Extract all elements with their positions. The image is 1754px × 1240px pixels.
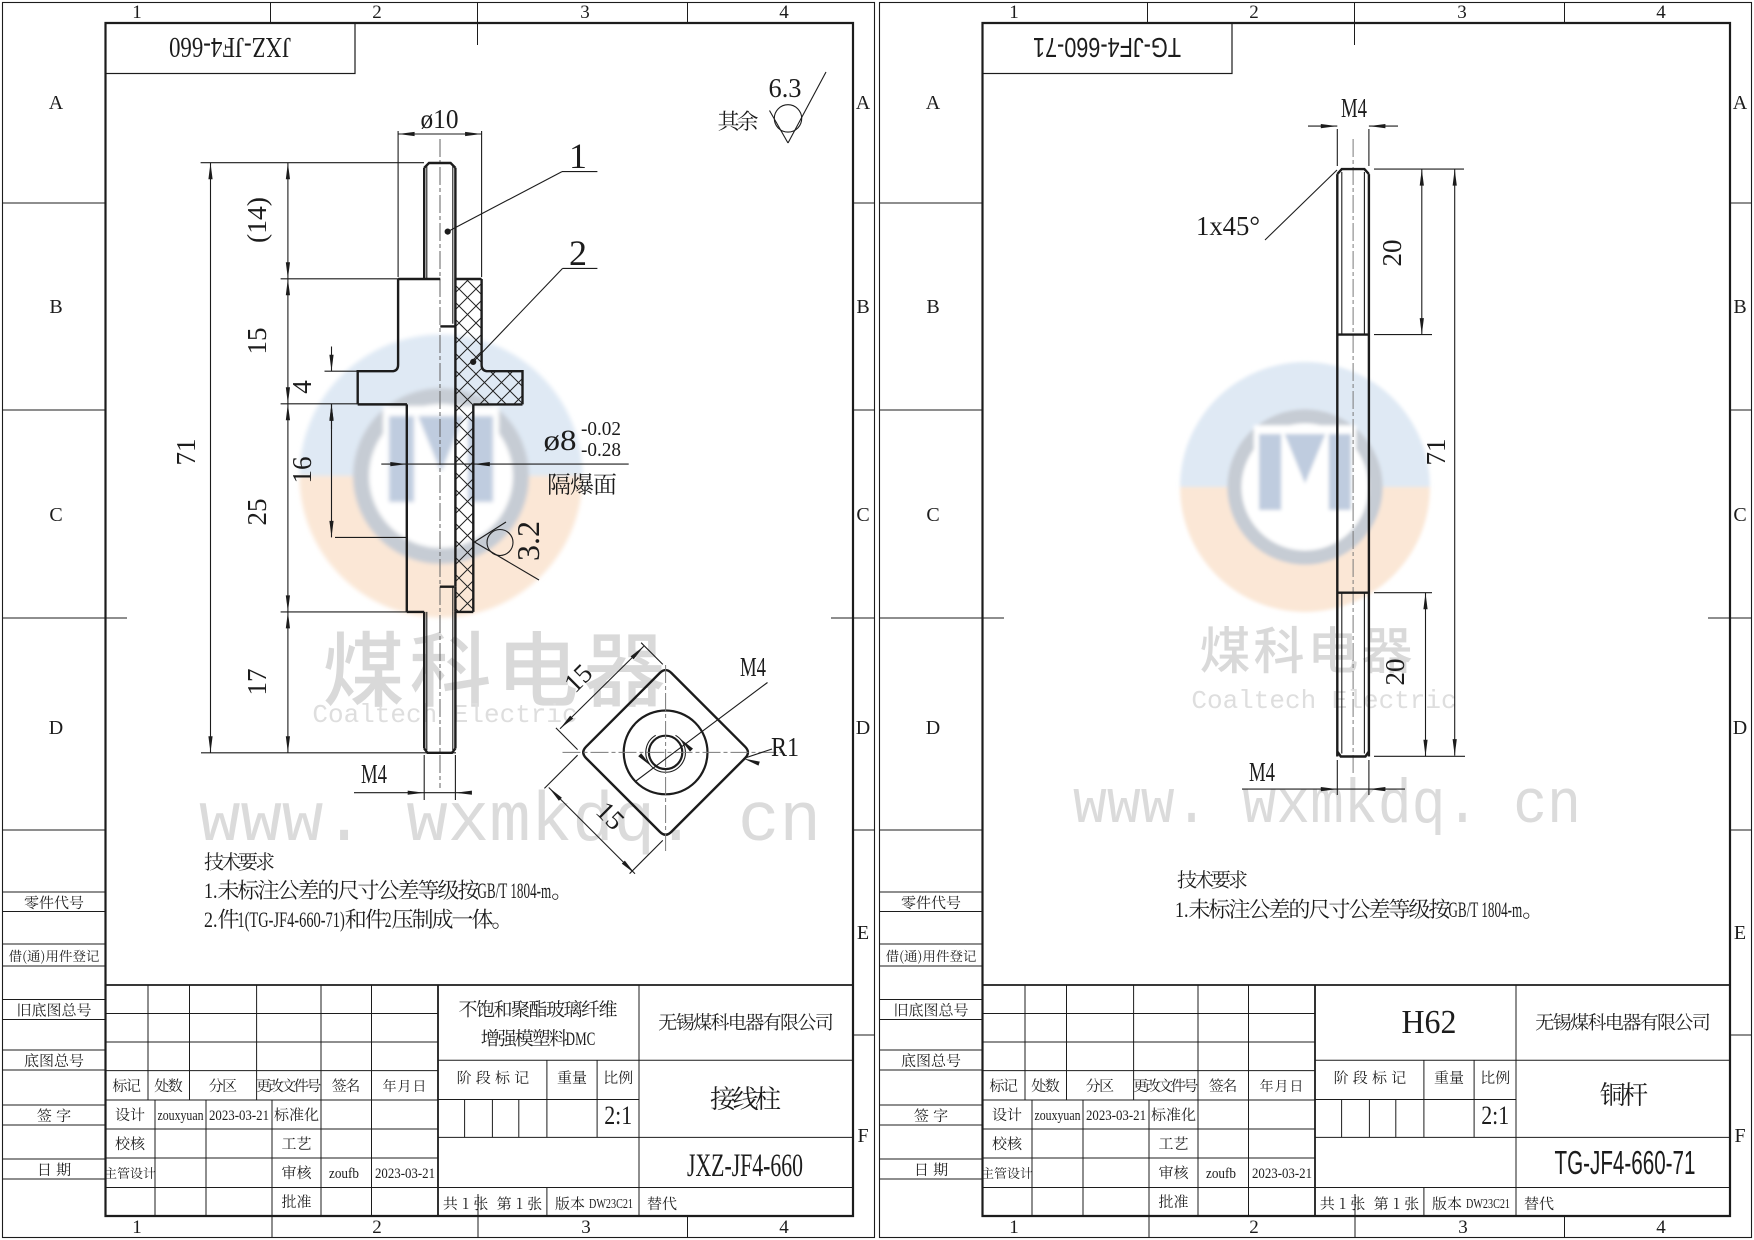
svg-text:B: B — [49, 296, 62, 318]
svg-text:1.: 1. — [1175, 897, 1188, 922]
svg-text:3: 3 — [581, 1217, 591, 1238]
svg-text:www. wxmkdq. cn: www. wxmkdq. cn — [199, 783, 821, 862]
svg-text:zoufb: zoufb — [329, 1166, 359, 1182]
svg-text:-0.28: -0.28 — [581, 439, 621, 461]
svg-text:17: 17 — [242, 669, 272, 696]
svg-text:Coaltech Electric: Coaltech Electric — [1191, 686, 1456, 716]
svg-text:3: 3 — [580, 2, 590, 23]
svg-text:GB/T 1804-m: GB/T 1804-m — [1448, 897, 1522, 922]
svg-text:4: 4 — [779, 1217, 789, 1238]
svg-text:16: 16 — [287, 457, 317, 484]
svg-text:15: 15 — [242, 328, 272, 355]
svg-text:R1: R1 — [771, 732, 799, 762]
svg-text:JXZ-JF4-660: JXZ-JF4-660 — [169, 31, 291, 62]
svg-text:A: A — [49, 92, 64, 114]
svg-text:C: C — [856, 504, 869, 526]
svg-text:DMC: DMC — [566, 1029, 596, 1050]
svg-text:TG-JF4-660-71: TG-JF4-660-71 — [1033, 32, 1181, 63]
svg-text:4: 4 — [779, 2, 789, 23]
svg-text:2: 2 — [385, 907, 392, 932]
svg-text:DW23C21: DW23C21 — [589, 1197, 633, 1212]
svg-text:71: 71 — [171, 439, 201, 466]
svg-text:zouxyuan: zouxyuan — [158, 1108, 204, 1124]
svg-text:1: 1 — [569, 136, 587, 176]
svg-text:2:1: 2:1 — [604, 1101, 632, 1130]
svg-text:(14): (14) — [242, 197, 272, 243]
svg-text:1x45°: 1x45° — [1196, 211, 1260, 241]
svg-text:E: E — [857, 922, 869, 944]
svg-text:1: 1 — [132, 1217, 142, 1238]
svg-text:1: 1 — [132, 2, 142, 23]
svg-text:D: D — [856, 717, 870, 739]
svg-text:Coaltech Electric: Coaltech Electric — [312, 700, 577, 730]
svg-text:A: A — [856, 92, 871, 114]
svg-text:2: 2 — [372, 2, 382, 23]
svg-text:D: D — [49, 717, 63, 739]
svg-text:M4: M4 — [1341, 93, 1367, 123]
svg-text:25: 25 — [242, 499, 272, 526]
svg-text:M4: M4 — [1249, 757, 1275, 787]
svg-text:6.3: 6.3 — [769, 73, 802, 103]
svg-text:JXZ-JF4-660: JXZ-JF4-660 — [687, 1148, 803, 1184]
svg-text:B: B — [856, 296, 869, 318]
svg-text:20: 20 — [1380, 659, 1410, 686]
svg-text:M4: M4 — [740, 652, 766, 682]
svg-text:M4: M4 — [361, 759, 387, 789]
svg-text:-0.02: -0.02 — [581, 418, 621, 440]
svg-text:3.2: 3.2 — [510, 521, 546, 561]
svg-text:2023-03-21: 2023-03-21 — [375, 1166, 435, 1182]
svg-text:20: 20 — [1377, 240, 1407, 267]
svg-text:1.: 1. — [204, 878, 217, 903]
svg-text:TG-JF4-660-71: TG-JF4-660-71 — [1555, 1144, 1696, 1181]
svg-text:F: F — [857, 1125, 868, 1147]
svg-text:GB/T 1804-m: GB/T 1804-m — [477, 878, 551, 903]
svg-text:C: C — [49, 504, 62, 526]
svg-text:71: 71 — [1421, 439, 1451, 466]
svg-text:1(TG-JF4-660-71): 1(TG-JF4-660-71) — [237, 907, 344, 932]
svg-text:4: 4 — [287, 380, 317, 394]
svg-text:ø10: ø10 — [421, 104, 459, 134]
svg-text:2023-03-21: 2023-03-21 — [209, 1108, 269, 1124]
svg-text:H62: H62 — [1402, 1004, 1457, 1041]
svg-text:www. wxmkdq. cn: www. wxmkdq. cn — [1073, 770, 1581, 841]
svg-text:2: 2 — [372, 1217, 382, 1238]
svg-text:ø8: ø8 — [544, 424, 577, 457]
svg-text:2: 2 — [569, 233, 587, 273]
svg-text:2.: 2. — [204, 907, 217, 932]
